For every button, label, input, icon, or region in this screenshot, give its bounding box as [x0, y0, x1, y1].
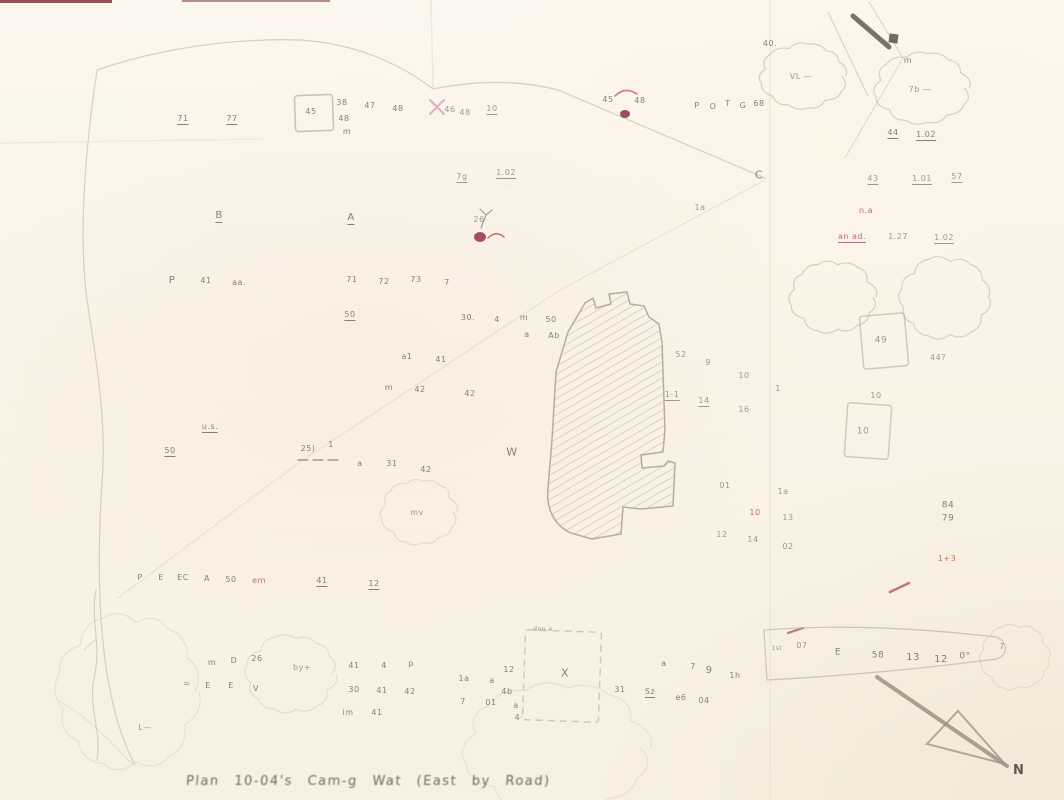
map-annotation: Sz — [645, 688, 655, 698]
map-annotation: 41 — [371, 709, 382, 717]
map-annotation: 44? — [930, 354, 946, 362]
map-annotation: 41 — [348, 662, 359, 670]
map-annotation: 71 — [177, 115, 188, 125]
map-annotation: 68 — [753, 100, 764, 108]
map-annotation: V — [253, 685, 259, 693]
map-annotation: E — [205, 682, 211, 690]
map-annotation: m — [343, 128, 351, 136]
map-annotation: 43 — [867, 175, 878, 185]
map-annotation: 72 — [378, 278, 389, 286]
map-annotation: 41 — [316, 577, 327, 587]
map-annotation: 48 — [338, 115, 349, 123]
map-annotation: 30. — [461, 314, 475, 322]
map-annotation: 41 — [376, 687, 387, 695]
map-annotation: EC — [177, 574, 189, 582]
map-annotation: 42 — [404, 688, 415, 696]
map-annotation: 7 — [690, 663, 696, 671]
map-annotation: P — [694, 102, 699, 110]
map-annotation: 40. — [763, 40, 777, 48]
map-annotation: 13 — [782, 514, 793, 522]
map-annotation: den e — [533, 627, 552, 633]
map-annotation: = — [183, 680, 190, 688]
map-annotations-layer: 7177453848m47484648104548POTG6840.VL —m7… — [0, 0, 1064, 800]
map-annotation: 7 — [460, 698, 466, 706]
map-annotation: 7b — — [909, 86, 932, 94]
map-annotation: T — [725, 100, 730, 108]
map-annotation: 9 — [706, 666, 713, 676]
map-annotation: O — [710, 103, 717, 111]
map-annotation: 46 — [444, 106, 455, 114]
map-annotation: 48 — [634, 97, 645, 105]
map-annotation: E — [835, 649, 841, 658]
map-annotation: u.s. — [202, 423, 218, 433]
map-annotation: a1 — [402, 353, 413, 361]
map-annotation: G — [740, 102, 747, 110]
map-annotation: 4· — [515, 714, 524, 722]
map-annotation: m — [385, 384, 393, 392]
map-annotation: 1.02 — [496, 169, 516, 179]
map-annotation: m — [520, 314, 528, 322]
map-annotation: 1.27 — [888, 233, 908, 241]
map-annotation: 7g — [456, 173, 467, 183]
map-annotation: 1a — [695, 204, 706, 212]
map-annotation: 12 — [934, 655, 948, 665]
map-annotation: 12 — [368, 580, 379, 590]
map-annotation: 84 — [942, 502, 954, 511]
map-annotation: C — [755, 170, 763, 181]
map-annotation: an ad. — [838, 233, 866, 243]
map-annotation: 25) — [301, 445, 316, 453]
map-annotation: 49 — [875, 337, 887, 346]
map-caption: Plan 10-04's Cam-g Wat (East by Road) — [185, 774, 551, 789]
map-annotation: 38 — [336, 99, 347, 107]
map-annotation: im — [342, 709, 353, 717]
map-annotation: 47 — [364, 102, 375, 110]
map-annotation: 77 — [226, 115, 237, 125]
map-annotation: B — [215, 211, 222, 223]
map-annotation: 9 — [705, 359, 711, 367]
map-annotation: L— — [138, 724, 151, 732]
map-annotation: p — [408, 660, 414, 668]
map-annotation: 7 — [999, 643, 1005, 651]
map-annotation: 01 — [719, 482, 730, 490]
map-annotation: 0° — [959, 653, 970, 662]
map-annotation: 1.02 — [916, 131, 936, 141]
map-annotation: 50 — [164, 447, 175, 457]
map-annotation: 10 — [857, 428, 869, 437]
map-annotation: 57 — [951, 173, 962, 183]
map-annotation: 48 — [459, 109, 470, 117]
map-annotation: 01 — [485, 699, 496, 707]
map-annotation: E — [228, 682, 234, 690]
map-annotation: 42 — [420, 466, 431, 474]
map-annotation: e6 — [675, 694, 686, 702]
map-annotation: 45 — [305, 108, 316, 116]
map-annotation: 1st — [772, 646, 783, 652]
map-annotation: a — [524, 331, 529, 339]
map-annotation: mv — [410, 509, 424, 517]
map-annotation: n.a — [859, 207, 873, 215]
map-annotation: em — [252, 577, 266, 585]
map-annotation: · · · — [501, 185, 511, 190]
map-annotation: 50 — [545, 316, 556, 324]
map-annotation: 1 — [775, 385, 781, 393]
map-annotation: W — [506, 447, 517, 458]
map-annotation: 7 — [444, 279, 450, 287]
map-annotation: X — [561, 668, 569, 679]
map-annotation: 30 — [348, 686, 359, 694]
map-annotation: 02 — [782, 543, 793, 551]
map-annotation: aa. — [232, 279, 246, 287]
map-annotation: 07 — [796, 642, 807, 650]
map-annotation: 50 — [344, 311, 355, 321]
map-annotation: 42 — [464, 390, 475, 398]
map-annotation: 1a — [459, 675, 470, 683]
map-annotation: 1.02 — [934, 234, 954, 244]
map-annotation: 10 — [870, 392, 881, 400]
map-annotation: 42 — [414, 386, 425, 394]
map-annotation: 71 — [346, 276, 357, 284]
map-annotation: 1.01 — [912, 175, 932, 185]
map-annotation: 1h — [729, 672, 740, 680]
map-annotation: 12 — [503, 666, 514, 674]
map-annotation: 41 — [435, 356, 446, 364]
map-annotation: 12 — [716, 531, 727, 539]
map-annotation: 50 — [225, 576, 236, 584]
map-annotation: 04 — [698, 697, 709, 705]
map-annotation: m — [904, 57, 912, 65]
map-annotation: 4 — [494, 316, 500, 324]
map-annotation: D — [231, 657, 238, 665]
map-annotation: 41 — [200, 277, 211, 285]
map-annotation: 10 — [486, 105, 497, 115]
map-annotation: 10 — [738, 372, 749, 380]
map-annotation: 44 — [887, 129, 898, 139]
map-annotation: 31 — [614, 686, 625, 694]
map-annotation: 4 — [381, 662, 387, 670]
map-annotation: 79 — [942, 515, 954, 524]
map-annotation: 58 — [872, 652, 884, 661]
map-annotation: 1-1 — [665, 391, 680, 401]
map-annotation: a — [357, 460, 362, 468]
map-annotation: a — [661, 660, 666, 668]
map-annotation: A — [347, 213, 354, 225]
map-annotation: 1a — [778, 488, 789, 496]
map-annotation: 1 — [328, 441, 334, 449]
map-annotation: m — [208, 659, 216, 667]
map-annotation: a — [489, 677, 494, 685]
map-annotation: 14 — [698, 397, 709, 407]
map-annotation: 26 — [251, 655, 262, 663]
map-annotation: 26 — [473, 216, 484, 224]
map-annotation: 52 — [675, 351, 686, 359]
map-annotation: P — [169, 276, 176, 286]
map-annotation: 31 — [386, 460, 397, 468]
map-annotation: 45 — [602, 96, 613, 104]
map-annotation: P — [137, 574, 142, 582]
map-annotation: by+ — [293, 664, 311, 672]
map-annotation: 14 — [747, 536, 758, 544]
map-annotation: 10 — [749, 509, 760, 517]
map-annotation: 4b — [501, 688, 512, 696]
map-annotation: E — [158, 574, 164, 582]
north-label: N — [1013, 763, 1024, 778]
map-annotation: Ab — [548, 332, 560, 340]
map-annotation: A — [204, 575, 210, 583]
map-annotation: 48 — [392, 105, 403, 113]
map-annotation: 73 — [410, 276, 421, 284]
map-annotation: 1+3 — [938, 555, 956, 563]
map-annotation: VL — — [790, 73, 812, 81]
map-annotation: a — [513, 702, 518, 710]
scanned-site-plan: 7177453848m47484648104548POTG6840.VL —m7… — [0, 0, 1064, 800]
map-annotation: 16 — [738, 406, 749, 414]
map-annotation: 13 — [906, 653, 920, 663]
